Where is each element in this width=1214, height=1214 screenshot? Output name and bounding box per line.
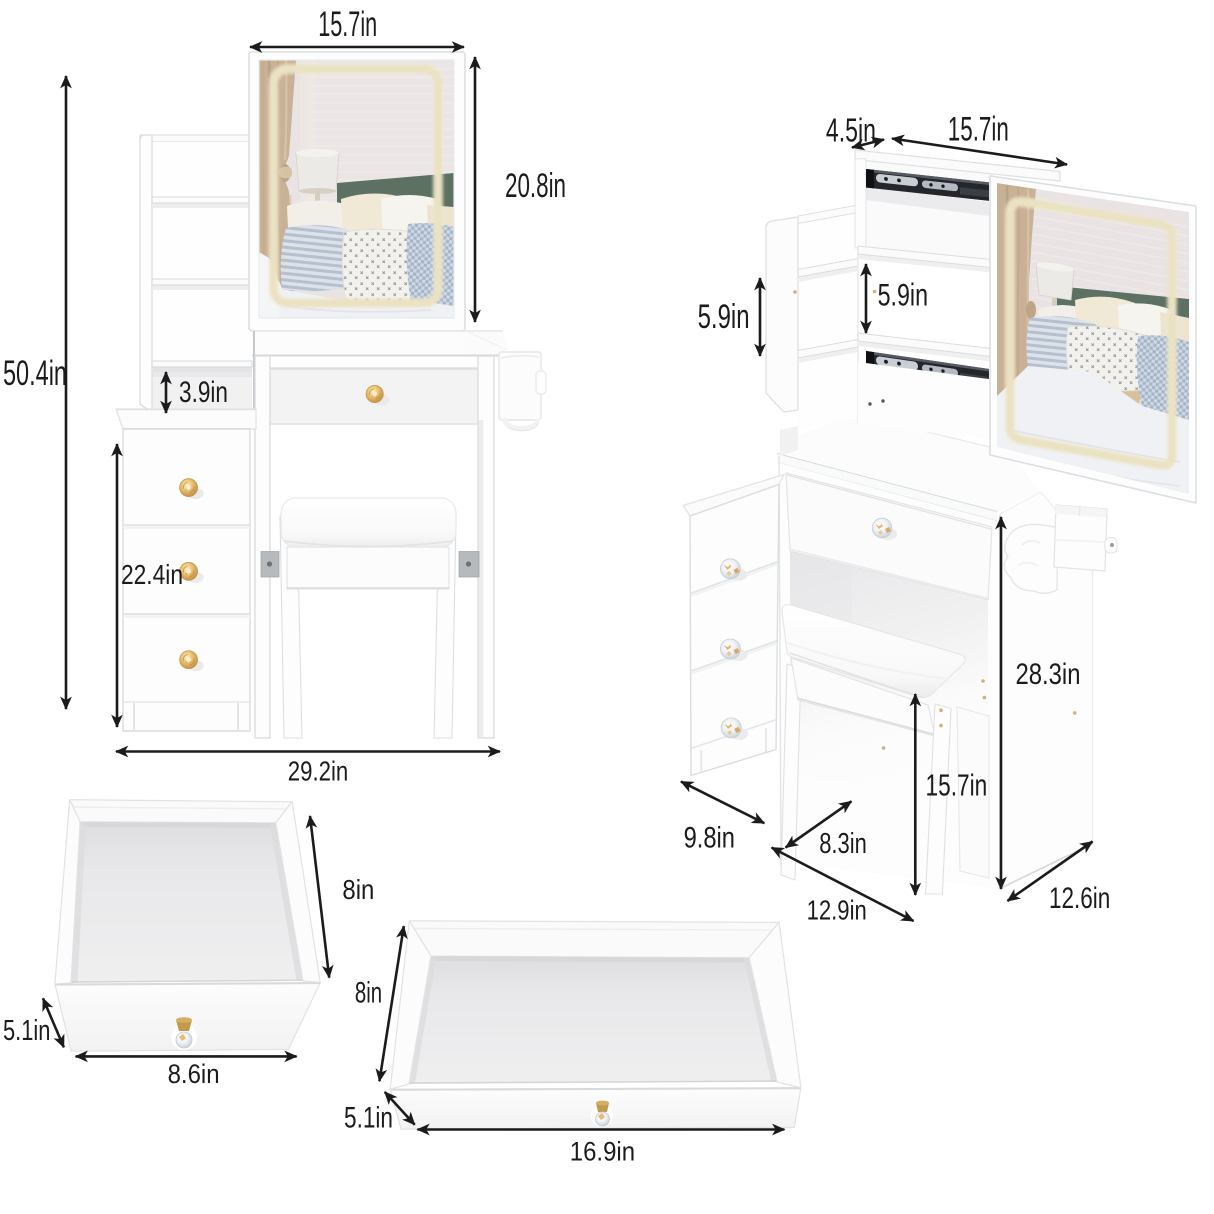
svg-text:4.5in: 4.5in bbox=[826, 112, 876, 149]
svg-text:15.7in: 15.7in bbox=[318, 4, 377, 44]
svg-text:28.3in: 28.3in bbox=[1016, 658, 1081, 691]
svg-text:15.7in: 15.7in bbox=[948, 110, 1009, 148]
svg-text:22.4in: 22.4in bbox=[121, 559, 183, 590]
svg-text:3.9in: 3.9in bbox=[179, 376, 228, 409]
svg-text:15.7in: 15.7in bbox=[926, 768, 988, 803]
svg-text:20.8in: 20.8in bbox=[505, 167, 566, 205]
svg-text:5.1in: 5.1in bbox=[344, 1101, 393, 1134]
svg-text:8in: 8in bbox=[342, 874, 374, 905]
svg-text:12.6in: 12.6in bbox=[1049, 882, 1110, 915]
svg-text:5.9in: 5.9in bbox=[698, 298, 750, 336]
svg-text:5.9in: 5.9in bbox=[878, 276, 928, 312]
svg-text:5.1in: 5.1in bbox=[3, 1015, 50, 1047]
svg-text:8.6in: 8.6in bbox=[168, 1059, 220, 1089]
svg-text:8in: 8in bbox=[355, 976, 382, 1009]
svg-text:16.9in: 16.9in bbox=[570, 1137, 635, 1167]
svg-text:12.9in: 12.9in bbox=[807, 895, 867, 926]
svg-text:8.3in: 8.3in bbox=[819, 828, 867, 860]
svg-text:29.2in: 29.2in bbox=[288, 756, 349, 787]
svg-text:9.8in: 9.8in bbox=[684, 822, 735, 855]
svg-text:50.4in: 50.4in bbox=[3, 354, 67, 393]
